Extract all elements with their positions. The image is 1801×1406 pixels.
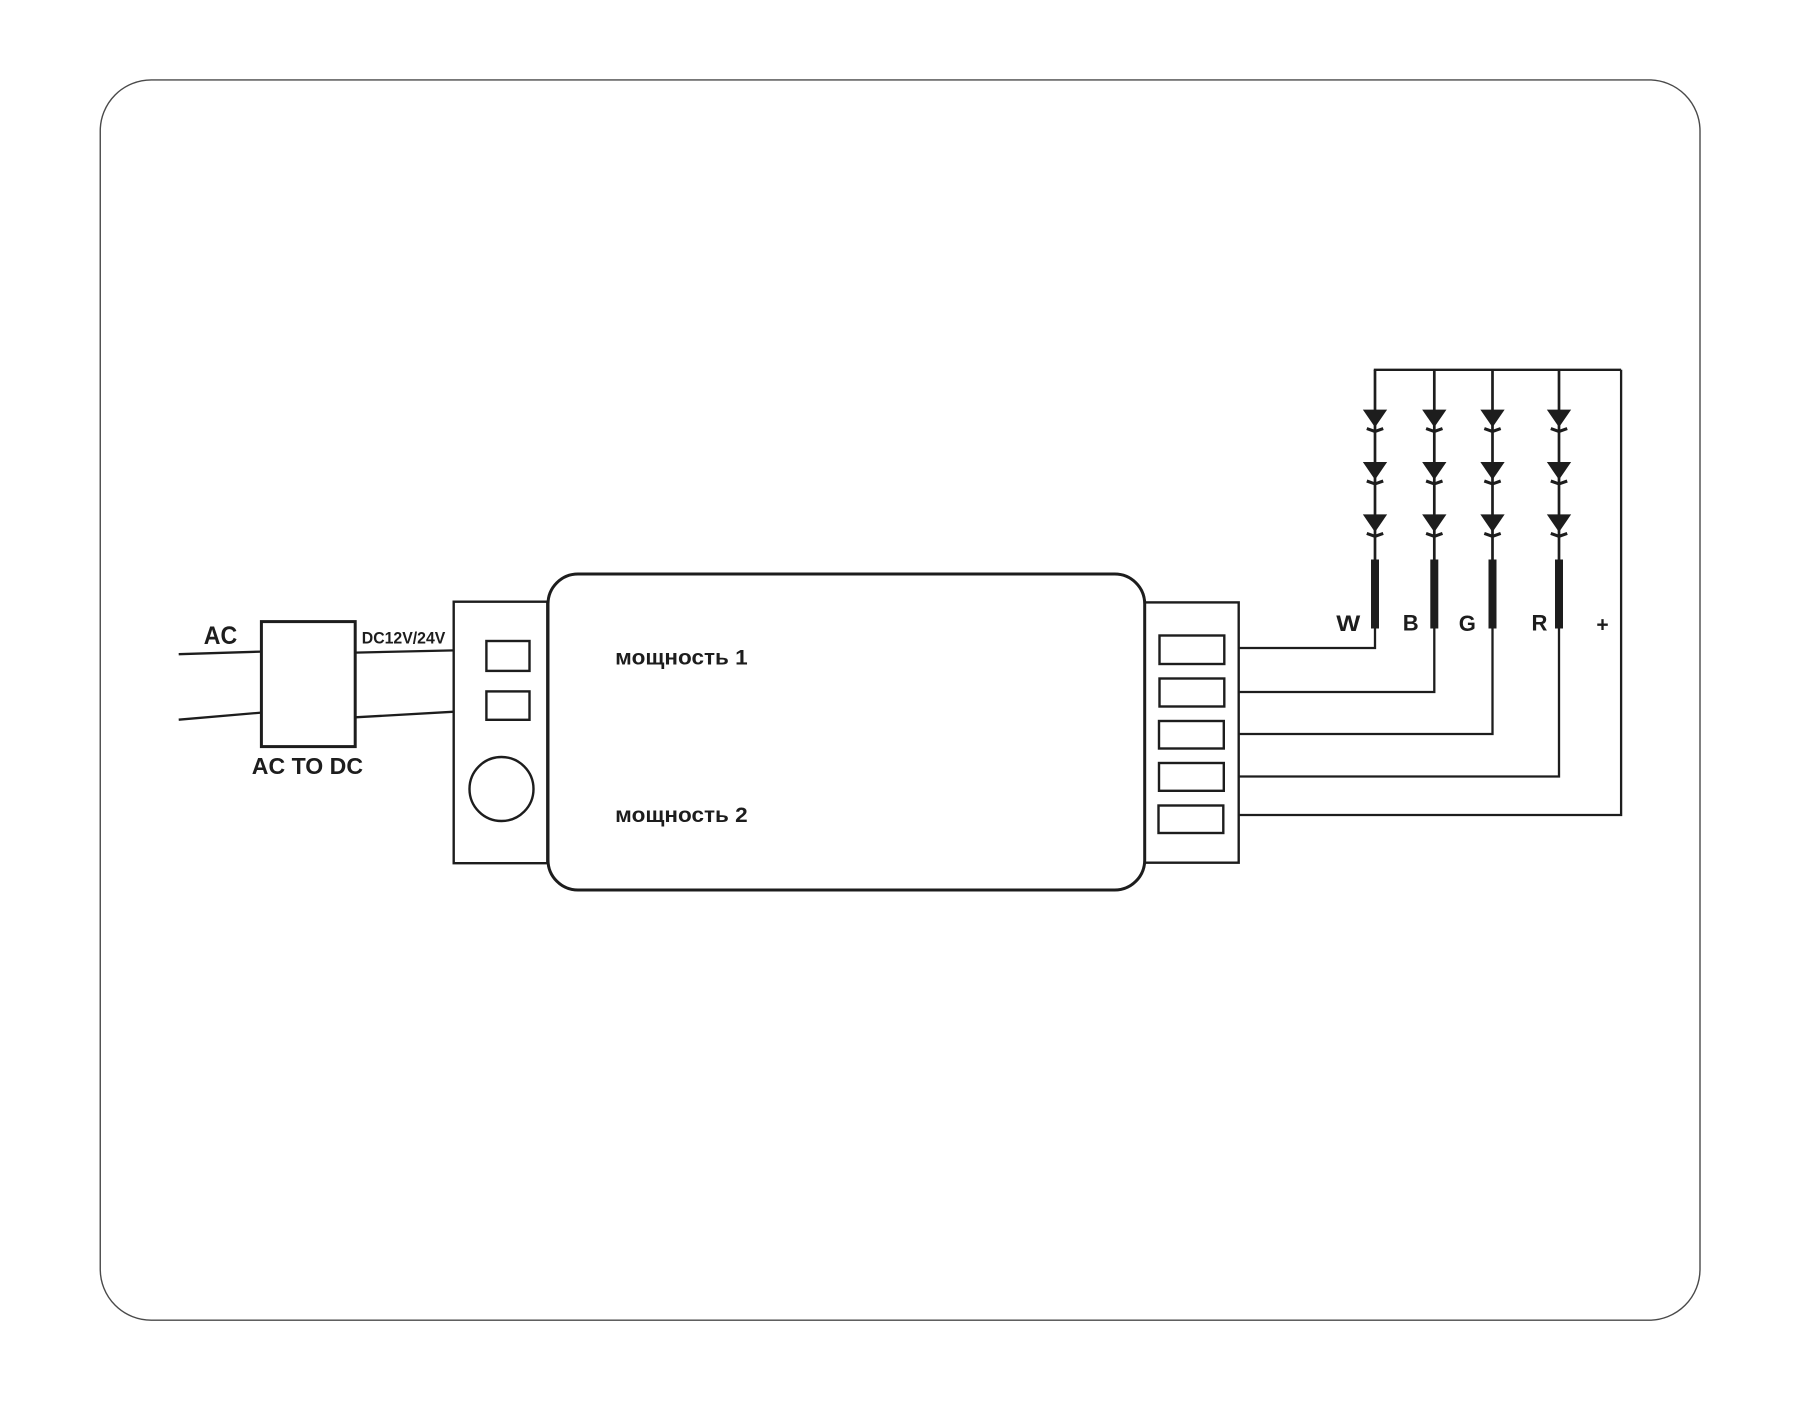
svg-text:AC TO DC: AC TO DC bbox=[252, 753, 363, 779]
svg-text:G: G bbox=[1459, 611, 1476, 636]
svg-text:B: B bbox=[1403, 611, 1419, 636]
svg-text:AC: AC bbox=[204, 622, 238, 650]
svg-text:W: W bbox=[1336, 611, 1360, 636]
svg-text:DC12V/24V: DC12V/24V bbox=[362, 628, 446, 647]
svg-text:R: R bbox=[1532, 611, 1548, 636]
svg-text:+: + bbox=[1596, 614, 1608, 637]
svg-text:мощность 2: мощность 2 bbox=[615, 804, 748, 827]
svg-text:мощность 1: мощность 1 bbox=[615, 646, 748, 669]
